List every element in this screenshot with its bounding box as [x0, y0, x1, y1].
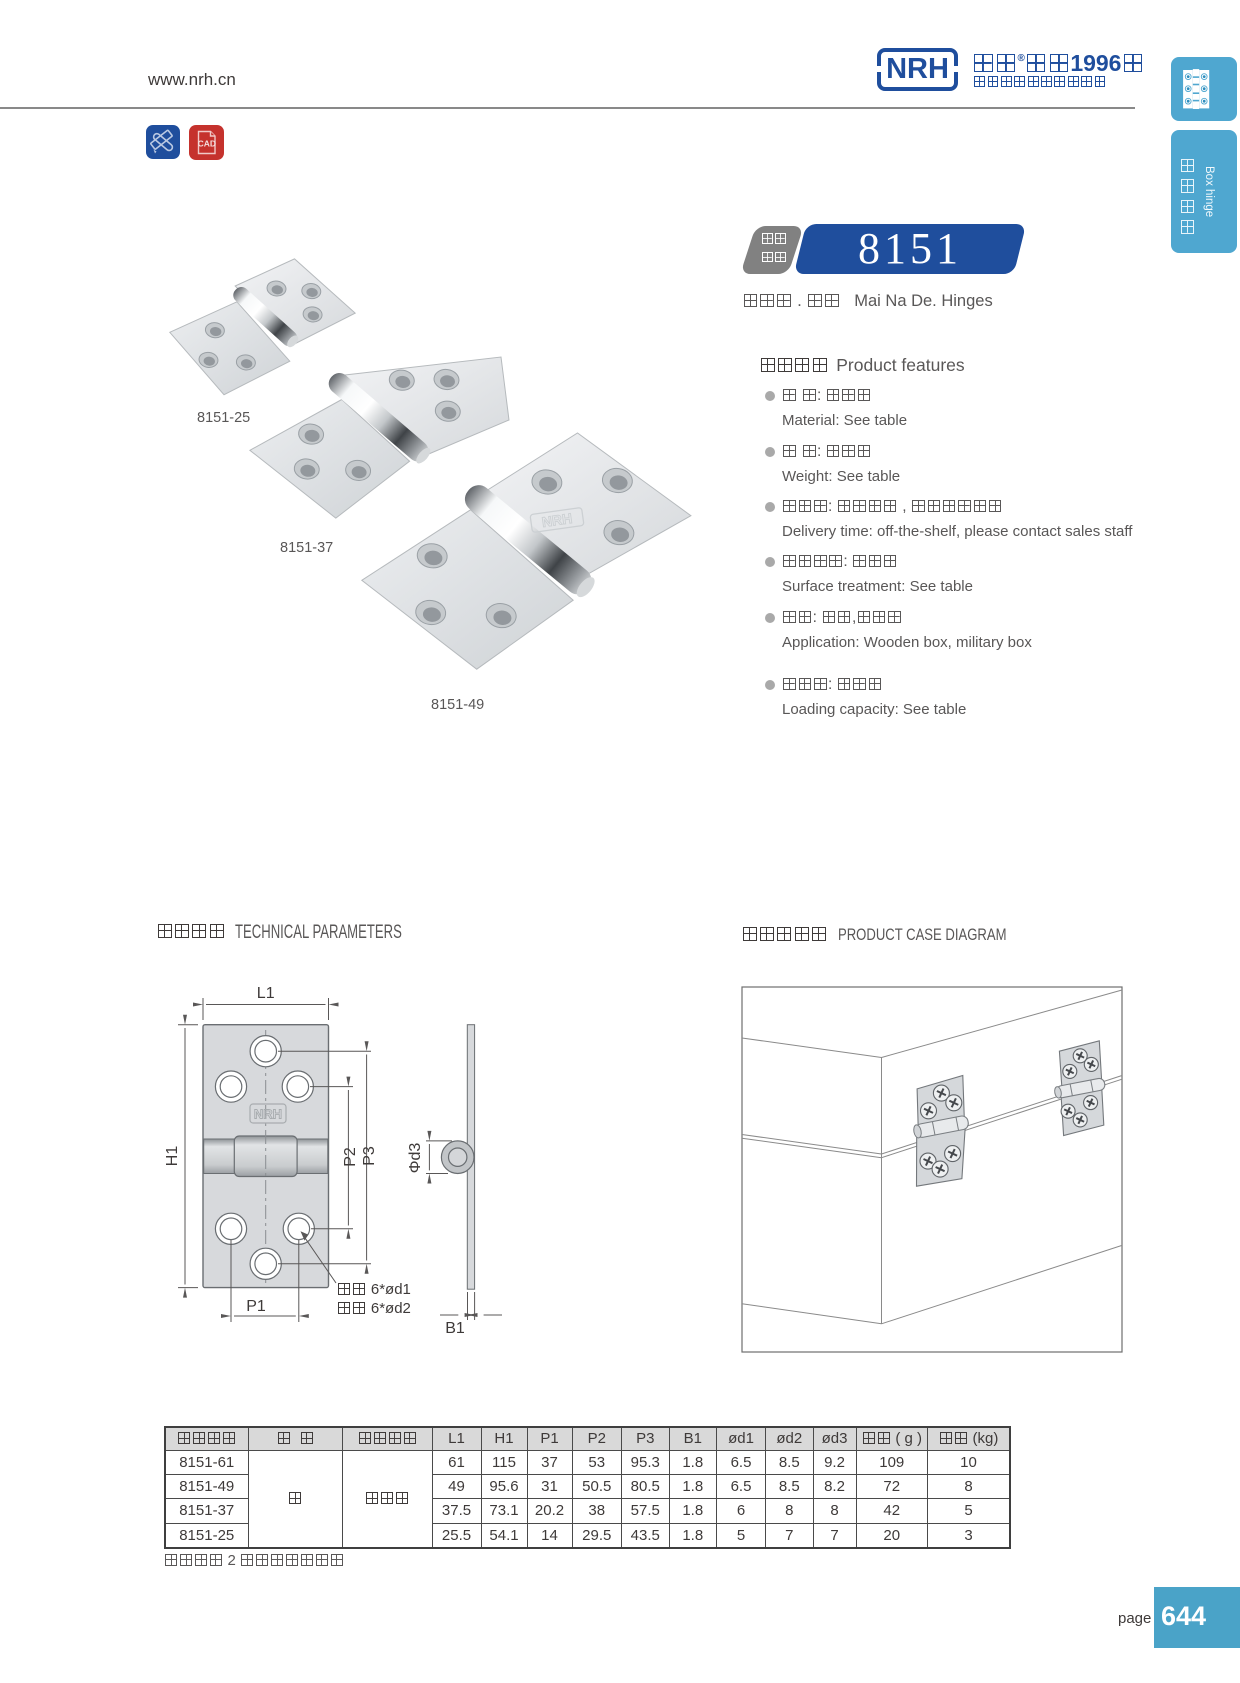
svg-text:P3: P3	[361, 1146, 378, 1166]
svg-text:L1: L1	[257, 985, 275, 1002]
svg-text:Φd3: Φd3	[407, 1143, 424, 1174]
svg-text:NRH: NRH	[254, 1107, 282, 1122]
svg-text:B1: B1	[445, 1320, 465, 1337]
svg-text:H1: H1	[164, 1146, 181, 1167]
svg-text:P1: P1	[246, 1298, 266, 1315]
svg-text:P2: P2	[342, 1147, 359, 1167]
